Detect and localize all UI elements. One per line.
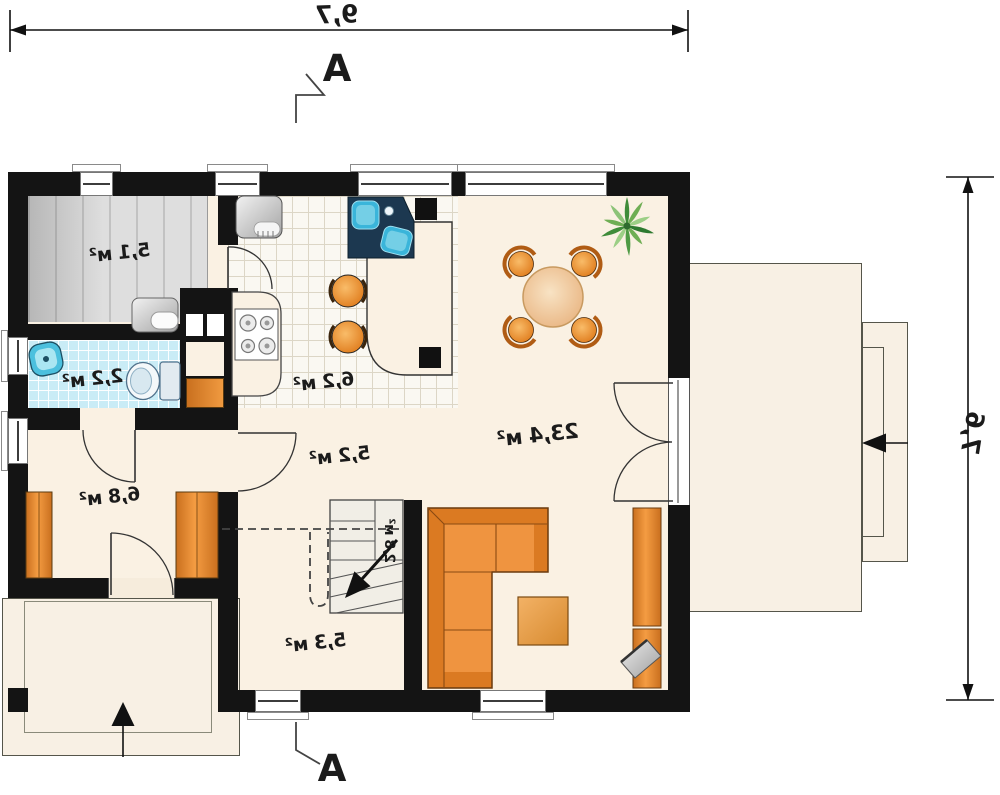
width-dimension-label: 9,7 — [306, 0, 367, 31]
wall-right-lower — [668, 505, 690, 690]
window-sill — [72, 164, 121, 172]
window-sill — [1, 411, 8, 471]
wall-kitchen-left — [218, 196, 238, 245]
chimney-vent-1 — [186, 314, 203, 336]
wall-bath-bottom-b — [135, 408, 184, 430]
window-sill — [350, 164, 460, 172]
window — [80, 172, 113, 196]
wall-right-upper — [668, 196, 690, 378]
window-sill — [207, 164, 268, 172]
section-marker-label: A — [306, 746, 358, 795]
window — [215, 172, 260, 196]
window — [8, 418, 28, 464]
bath-cabinet — [186, 378, 224, 408]
window-sill — [1, 330, 8, 382]
section-marker-label: A — [314, 46, 360, 92]
height-dimension-label: 7,6 — [951, 401, 994, 466]
wall-vestibule-left — [218, 598, 238, 690]
chimney-vent-2 — [207, 314, 224, 336]
wall-stairs-side — [404, 500, 422, 690]
right-terrace-step-2 — [862, 347, 884, 537]
entrance-terrace-deck — [24, 601, 212, 733]
wall-bath-top — [8, 324, 184, 340]
terrace-door-gap — [668, 378, 690, 505]
chimney-niche — [186, 342, 224, 376]
window — [358, 172, 452, 196]
window — [255, 690, 301, 712]
right-terrace — [680, 263, 862, 612]
room-area-label: 2,8 м² — [377, 496, 401, 586]
window — [480, 690, 546, 712]
wall-hall-left — [218, 492, 238, 578]
entrance-door-gap — [108, 578, 175, 598]
window — [465, 172, 607, 196]
floor-plan: 5,1 м² 2,2 м² 6,2 м² 5,2 м² 6,8 м² 23,4 … — [0, 0, 1000, 795]
window-sill — [457, 164, 615, 172]
window-sill — [247, 712, 309, 720]
wall-left — [8, 196, 28, 598]
terrace-pier — [8, 688, 28, 712]
window-sill — [472, 712, 554, 720]
window — [8, 337, 28, 375]
